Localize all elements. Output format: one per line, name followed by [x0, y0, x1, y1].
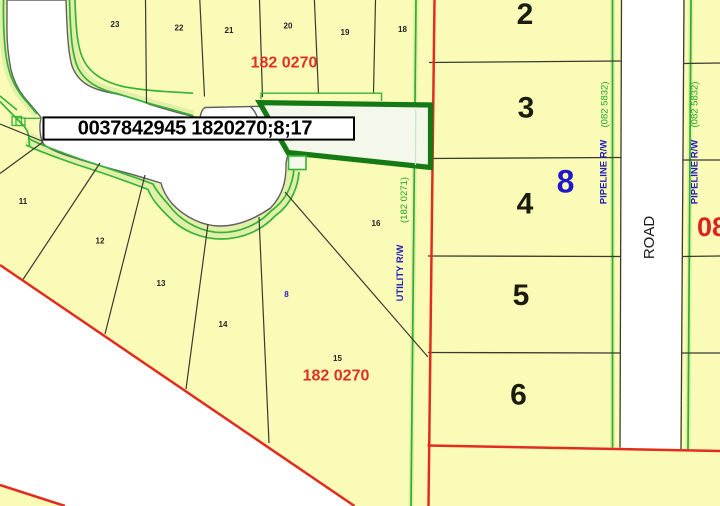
svg-text:182 0270: 182 0270 [303, 368, 370, 385]
svg-text:20: 20 [284, 22, 293, 31]
svg-text:5: 5 [513, 279, 530, 312]
svg-text:14: 14 [219, 320, 228, 329]
svg-text:PIPELINE R/W: PIPELINE R/W [599, 140, 610, 204]
svg-text:22: 22 [175, 24, 184, 33]
svg-text:2: 2 [517, 0, 534, 31]
svg-text:23: 23 [111, 20, 120, 29]
svg-text:3: 3 [518, 92, 535, 125]
svg-text:0037842945 1820270;8;17: 0037842945 1820270;8;17 [78, 118, 313, 140]
svg-text:6: 6 [510, 379, 527, 412]
svg-text:8: 8 [557, 164, 575, 200]
svg-text:13: 13 [157, 279, 166, 288]
svg-text:(082 5832): (082 5832) [690, 82, 701, 128]
svg-text:11: 11 [19, 197, 28, 206]
svg-text:(082 5832): (082 5832) [600, 82, 611, 128]
svg-text:PIPELINE R/W: PIPELINE R/W [690, 140, 701, 204]
svg-text:8: 8 [284, 290, 289, 299]
svg-text:08: 08 [697, 212, 720, 242]
svg-text:UTILITY R/W: UTILITY R/W [395, 245, 406, 302]
svg-text:12: 12 [96, 237, 105, 246]
svg-text:21: 21 [225, 26, 234, 35]
svg-text:16: 16 [372, 219, 381, 228]
svg-text:182 0270: 182 0270 [251, 55, 318, 72]
svg-text:ROAD: ROAD [641, 216, 658, 260]
svg-text:18: 18 [398, 25, 407, 34]
svg-text:4: 4 [517, 188, 534, 221]
svg-text:(182 0271): (182 0271) [399, 177, 410, 223]
svg-text:15: 15 [333, 354, 342, 363]
svg-text:19: 19 [341, 28, 350, 37]
